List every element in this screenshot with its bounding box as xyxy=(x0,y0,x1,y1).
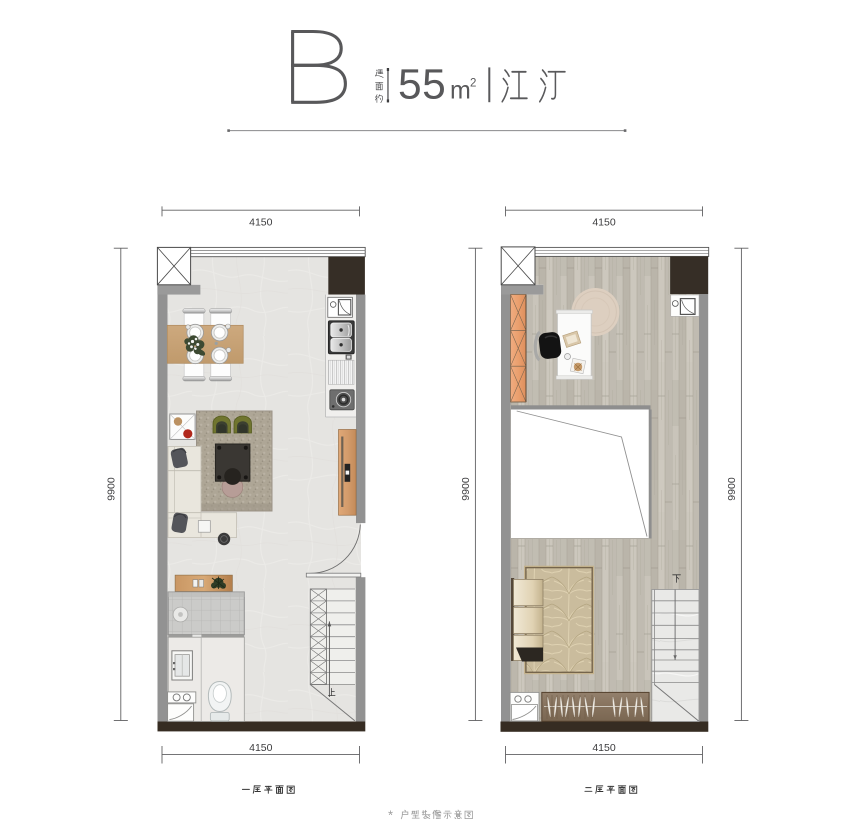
svg-text:m: m xyxy=(450,76,471,104)
svg-text:55: 55 xyxy=(398,62,446,109)
svg-text:2: 2 xyxy=(470,78,476,90)
svg-text:4150: 4150 xyxy=(249,216,273,228)
svg-text:4150: 4150 xyxy=(592,216,616,228)
svg-text:9900: 9900 xyxy=(460,477,472,501)
svg-text:9900: 9900 xyxy=(726,477,738,501)
svg-text:4150: 4150 xyxy=(592,742,616,754)
svg-text:*: * xyxy=(388,808,393,823)
svg-text:9900: 9900 xyxy=(106,477,118,501)
svg-text:4150: 4150 xyxy=(249,742,273,754)
